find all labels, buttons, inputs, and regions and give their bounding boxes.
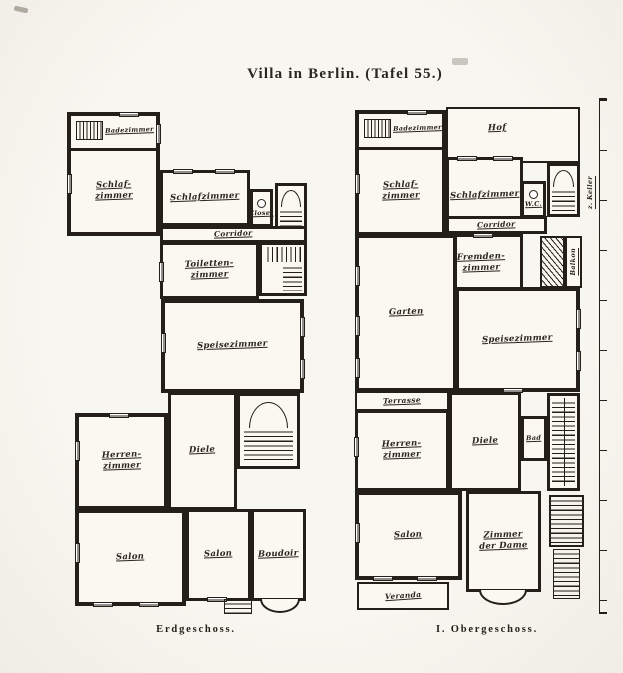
window <box>139 602 159 607</box>
stairs <box>547 393 580 491</box>
window <box>417 576 437 581</box>
window <box>173 169 193 174</box>
room-label: Veranda <box>385 590 422 603</box>
stair-arch <box>249 402 288 428</box>
plan-caption-erdgeschoss: Erdgeschoss. <box>126 624 266 635</box>
window <box>300 317 305 337</box>
room-boudoir: Boudoir <box>251 509 306 601</box>
room-label: Schlaf- zimmer <box>94 179 133 203</box>
room-label: Salon <box>204 549 233 561</box>
entrance-steps <box>553 549 580 599</box>
bay-window <box>260 599 300 613</box>
room-diele: Diele <box>168 392 237 510</box>
room-garten: Garten <box>355 234 457 392</box>
room-closet: Closet <box>250 189 273 227</box>
window <box>215 169 235 174</box>
stairs <box>237 393 300 469</box>
stair-treads <box>244 428 293 463</box>
window <box>159 262 164 282</box>
room-label: Zimmer der Dame <box>479 529 528 554</box>
room-corridor: Corridor <box>446 216 547 234</box>
room-badezimmer: Badezimmer <box>71 116 156 151</box>
stairs <box>547 163 580 217</box>
room-label: Bad <box>526 434 541 443</box>
window <box>493 156 513 161</box>
room-label: Corridor <box>214 229 253 240</box>
window <box>355 266 360 286</box>
room-toilettenzimmer: Toiletten- zimmer <box>160 242 259 299</box>
stair-arch <box>281 190 301 207</box>
room-label: W.C. <box>525 200 542 209</box>
room-diele: Diele <box>449 392 521 491</box>
window <box>407 110 427 115</box>
window <box>156 124 161 144</box>
room-badezimmer: Badezimmer <box>359 114 442 150</box>
room-terrasse: Terrasse <box>355 391 449 411</box>
window <box>109 413 129 418</box>
scale-bar <box>599 98 607 614</box>
window <box>161 333 166 353</box>
room-herrenzimmer: Herren- zimmer <box>75 413 168 510</box>
stair-midline <box>564 398 566 486</box>
plate-title: Villa in Berlin. (Tafel 55.) <box>235 66 455 83</box>
room-label: Corridor <box>477 219 516 230</box>
toilet-icon <box>529 190 538 199</box>
window <box>300 359 305 379</box>
room-label: Diele <box>472 435 499 447</box>
room-schlafzimmer-links: Schlaf- zimmer <box>359 150 442 232</box>
window <box>457 156 477 161</box>
window <box>355 174 360 194</box>
room-label: Badezimmer <box>393 123 442 133</box>
room-label: Schlafzimmer <box>170 191 240 205</box>
stairs <box>259 242 307 296</box>
bay-window <box>479 590 527 605</box>
room-label: Terrasse <box>383 395 421 406</box>
area-label: Hof <box>488 123 507 135</box>
window <box>354 437 359 457</box>
room-label: Schlafzimmer <box>450 189 520 203</box>
window <box>473 233 493 238</box>
room-label: Salon <box>116 551 145 563</box>
room-label: Boudoir <box>258 549 299 562</box>
window <box>576 309 581 329</box>
room-zimmer-der-dame: Zimmer der Dame <box>466 491 541 592</box>
room-label: Schlaf- zimmer <box>381 179 420 203</box>
stair-treads <box>552 188 575 212</box>
window <box>355 358 360 378</box>
room-schlafzimmer-links: Schlaf- zimmer <box>71 151 156 232</box>
window <box>355 523 360 543</box>
room-speisezimmer: Speisezimmer <box>455 287 580 392</box>
room-label: Balkon <box>569 248 578 276</box>
entrance-steps <box>224 599 252 614</box>
room-salon: Salon <box>355 491 462 580</box>
window <box>75 441 80 461</box>
window <box>576 351 581 371</box>
toilet-icon <box>257 199 266 208</box>
room-bad: Bad <box>521 416 547 461</box>
room-herrenzimmer: Herren- zimmer <box>355 410 449 491</box>
room-label: Toiletten- zimmer <box>185 258 235 283</box>
room-speisezimmer: Speisezimmer <box>161 299 304 393</box>
room-salon-gross: Salon <box>75 509 186 606</box>
room-balkon: Balkon <box>565 236 582 288</box>
room-label: Speisezimmer <box>482 333 553 347</box>
room-label: Garten <box>389 307 424 320</box>
annotation-keller: z. Keller <box>586 176 595 209</box>
room-corridor: Corridor <box>160 226 307 243</box>
scan-artifact <box>452 58 468 65</box>
room-label: Diele <box>189 445 216 457</box>
room-schlafzimmer-mitte: Schlafzimmer <box>160 170 250 226</box>
stair-treads <box>264 247 302 262</box>
room-label: Salon <box>394 529 423 541</box>
area-hof: Hof <box>446 107 580 163</box>
stair-arch <box>553 170 574 187</box>
stair-treads <box>283 264 302 291</box>
room-label: Herren- zimmer <box>382 438 422 462</box>
room-label: Fremden- zimmer <box>457 251 506 276</box>
window <box>355 316 360 336</box>
room-block-schlafzimmer-bad: Badezimmer Schlaf- zimmer <box>355 110 446 236</box>
window <box>93 602 113 607</box>
stairs <box>540 236 565 288</box>
room-label: Speisezimmer <box>197 339 268 353</box>
plan-caption-obergeschoss: I. Obergeschoss. <box>412 624 562 635</box>
entrance-steps <box>549 495 584 547</box>
room-label: Closet <box>249 208 274 218</box>
window <box>373 576 393 581</box>
bathtub-icon <box>76 121 103 140</box>
room-block-schlafzimmer-bad: Badezimmer Schlaf- zimmer <box>67 112 160 236</box>
bathtub-icon <box>364 119 391 138</box>
window <box>119 112 139 117</box>
room-label: Herren- zimmer <box>101 449 141 473</box>
room-wc: W.C. <box>521 181 546 218</box>
scan-artifact <box>14 6 29 14</box>
window <box>75 543 80 563</box>
room-label: Badezimmer <box>105 125 154 135</box>
room-salon-klein: Salon <box>186 509 251 601</box>
scanned-plate: Villa in Berlin. (Tafel 55.) Badezimmer … <box>0 0 623 673</box>
room-veranda: Veranda <box>357 582 449 610</box>
window <box>67 174 72 194</box>
